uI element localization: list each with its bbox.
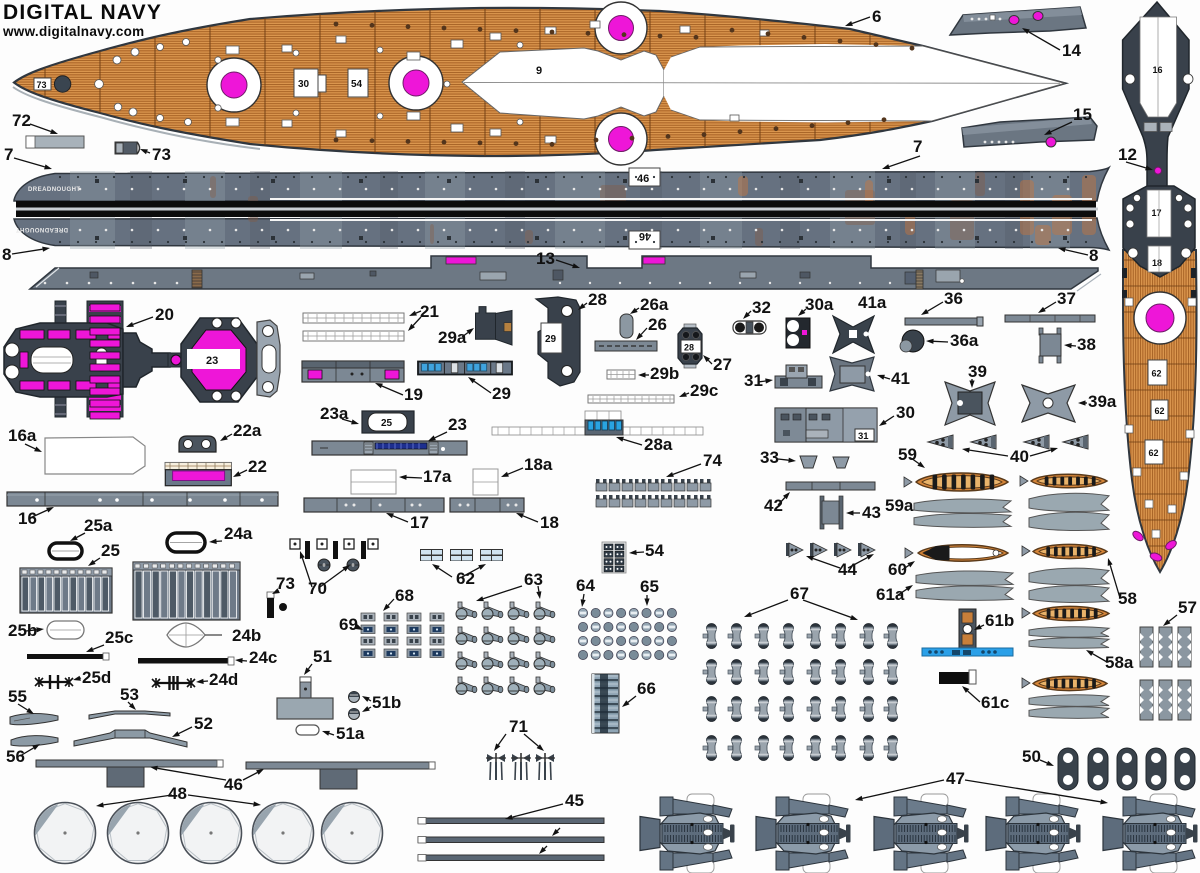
svg-text:29: 29 <box>545 334 557 345</box>
svg-text:9: 9 <box>536 65 542 77</box>
svg-text:25c: 25c <box>105 628 133 647</box>
svg-text:25a: 25a <box>84 516 113 535</box>
svg-text:25d: 25d <box>82 668 111 687</box>
svg-text:58: 58 <box>1118 589 1137 608</box>
svg-text:8: 8 <box>2 245 11 264</box>
svg-text:65: 65 <box>640 577 659 596</box>
svg-text:29b: 29b <box>650 364 679 383</box>
svg-text:39: 39 <box>968 362 987 381</box>
svg-text:12: 12 <box>1118 145 1137 164</box>
svg-text:DIGITAL NAVY: DIGITAL NAVY <box>3 1 162 24</box>
svg-text:25: 25 <box>381 418 393 429</box>
svg-text:57: 57 <box>1178 598 1197 617</box>
svg-text:56: 56 <box>6 747 25 766</box>
svg-text:73: 73 <box>276 574 295 593</box>
svg-text:31: 31 <box>744 371 763 390</box>
svg-text:43: 43 <box>862 503 881 522</box>
svg-text:74: 74 <box>703 451 722 470</box>
svg-text:30: 30 <box>298 79 310 90</box>
svg-text:44: 44 <box>838 560 857 579</box>
svg-text:40: 40 <box>1010 447 1029 466</box>
svg-text:30a: 30a <box>805 295 834 314</box>
svg-text:22: 22 <box>248 457 267 476</box>
svg-text:28: 28 <box>588 290 607 309</box>
svg-text:62: 62 <box>1149 448 1159 458</box>
svg-text:21: 21 <box>420 302 439 321</box>
svg-text:46: 46 <box>224 775 243 794</box>
svg-text:20: 20 <box>155 305 174 324</box>
svg-text:52: 52 <box>194 714 213 733</box>
svg-text:73: 73 <box>37 80 47 90</box>
svg-text:73: 73 <box>152 145 171 164</box>
svg-text:13: 13 <box>536 249 555 268</box>
svg-text:29c: 29c <box>690 381 718 400</box>
svg-text:68: 68 <box>395 586 414 605</box>
svg-text:51a: 51a <box>336 724 365 743</box>
svg-text:60: 60 <box>888 560 907 579</box>
svg-text:45: 45 <box>565 791 584 810</box>
svg-text:53: 53 <box>120 685 139 704</box>
svg-text:36: 36 <box>944 289 963 308</box>
svg-text:41: 41 <box>891 369 910 388</box>
svg-text:24d: 24d <box>209 670 238 689</box>
svg-text:22a: 22a <box>233 421 262 440</box>
svg-text:51b: 51b <box>372 693 401 712</box>
svg-text:17: 17 <box>410 513 429 532</box>
svg-text:16: 16 <box>18 509 37 528</box>
svg-text:38: 38 <box>1077 335 1096 354</box>
svg-text:14: 14 <box>1062 41 1081 60</box>
svg-text:28: 28 <box>684 343 694 353</box>
svg-text:41a: 41a <box>858 293 887 312</box>
svg-text:72: 72 <box>12 111 31 130</box>
svg-text:29: 29 <box>492 384 511 403</box>
svg-text:7: 7 <box>913 137 922 156</box>
svg-text:8: 8 <box>1089 246 1098 265</box>
svg-text:63: 63 <box>524 570 543 589</box>
svg-text:23: 23 <box>448 415 467 434</box>
svg-text:26a: 26a <box>640 295 669 314</box>
svg-text:18a: 18a <box>524 455 553 474</box>
svg-text:48: 48 <box>168 784 187 803</box>
svg-text:30: 30 <box>896 403 915 422</box>
svg-text:24b: 24b <box>232 626 261 645</box>
svg-text:64: 64 <box>576 576 595 595</box>
svg-text:55: 55 <box>8 687 27 706</box>
svg-text:15: 15 <box>1073 105 1092 124</box>
svg-text:46: 46 <box>637 173 649 185</box>
svg-text:27: 27 <box>713 355 732 374</box>
svg-text:29a: 29a <box>438 328 467 347</box>
svg-text:59a: 59a <box>885 496 914 515</box>
svg-text:7: 7 <box>4 145 13 164</box>
svg-text:31: 31 <box>858 431 869 442</box>
svg-text:42: 42 <box>764 496 783 515</box>
svg-text:66: 66 <box>637 679 656 698</box>
svg-text:25: 25 <box>101 541 120 560</box>
svg-text:16: 16 <box>1153 65 1163 75</box>
svg-text:71: 71 <box>509 717 528 736</box>
svg-text:DREADNOUGHT: DREADNOUGHT <box>15 226 68 232</box>
svg-text:36a: 36a <box>950 331 979 350</box>
svg-text:19: 19 <box>404 385 423 404</box>
svg-text:51: 51 <box>313 647 332 666</box>
svg-text:67: 67 <box>790 584 809 603</box>
svg-text:62: 62 <box>1152 369 1162 379</box>
svg-text:32: 32 <box>752 298 771 317</box>
svg-text:62: 62 <box>1155 406 1165 416</box>
svg-text:33: 33 <box>760 448 779 467</box>
svg-text:46: 46 <box>639 230 651 242</box>
svg-text:DREADNOUGHT: DREADNOUGHT <box>28 187 81 193</box>
svg-text:59: 59 <box>898 445 917 464</box>
svg-text:28a: 28a <box>644 435 673 454</box>
svg-text:61b: 61b <box>985 611 1014 630</box>
svg-text:18: 18 <box>540 513 559 532</box>
svg-text:www.digitalnavy.com: www.digitalnavy.com <box>2 24 144 39</box>
svg-text:23: 23 <box>206 355 218 367</box>
svg-text:17: 17 <box>1152 208 1162 218</box>
svg-text:26: 26 <box>648 315 667 334</box>
svg-text:24a: 24a <box>224 524 253 543</box>
svg-text:39a: 39a <box>1088 392 1117 411</box>
svg-text:6: 6 <box>872 7 881 26</box>
svg-text:37: 37 <box>1057 289 1076 308</box>
svg-text:16a: 16a <box>8 426 37 445</box>
svg-text:50: 50 <box>1022 747 1041 766</box>
svg-text:24c: 24c <box>249 648 277 667</box>
svg-text:54: 54 <box>351 79 363 90</box>
svg-text:17a: 17a <box>423 467 452 486</box>
svg-text:18: 18 <box>1152 258 1162 268</box>
svg-text:61c: 61c <box>981 693 1009 712</box>
svg-text:54: 54 <box>645 541 664 560</box>
svg-text:47: 47 <box>946 769 965 788</box>
svg-text:69: 69 <box>339 615 358 634</box>
svg-text:58a: 58a <box>1105 653 1134 672</box>
svg-text:61a: 61a <box>876 585 905 604</box>
